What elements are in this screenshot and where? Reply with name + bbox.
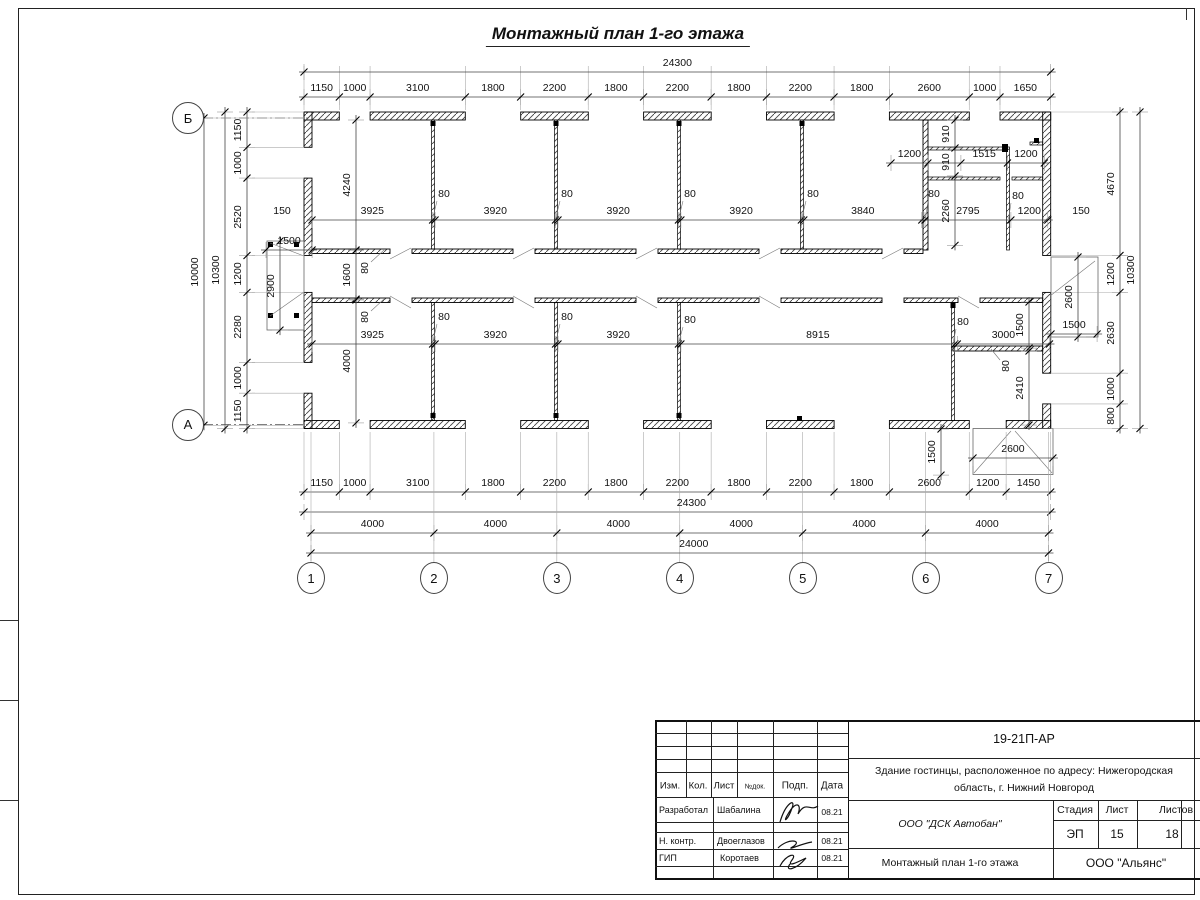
row-role: ГИП: [659, 853, 677, 863]
axis-bubble-6: 6: [912, 562, 940, 594]
dim-label: 4000: [852, 518, 875, 530]
dim-label: 3100: [406, 477, 429, 489]
dim-label: 3920: [484, 205, 507, 217]
dim-label: 1150: [310, 82, 333, 94]
dim-label: 2600: [918, 477, 941, 489]
dim-label: 1000: [343, 82, 366, 94]
dim-label: 3000: [992, 329, 1015, 341]
dim-label: 3925: [361, 205, 384, 217]
sheets-total: 18: [1165, 827, 1178, 841]
dim-label: 1800: [850, 82, 873, 94]
axis-bubble-2: 2: [420, 562, 448, 594]
dim-label: 1000: [973, 82, 996, 94]
dim-label: 4000: [361, 518, 384, 530]
dim-label: 1500: [1062, 319, 1085, 331]
dim-label: 80: [1012, 190, 1024, 202]
org-name: ООО "ДСК Автобан": [898, 818, 1001, 830]
dim-label: 910: [940, 153, 952, 171]
dim-label: 80: [1000, 360, 1012, 372]
stage-label: Стадия: [1057, 804, 1093, 816]
col-list: Лист: [714, 781, 735, 792]
dim-label: 2200: [789, 82, 812, 94]
dim-label: 1800: [727, 82, 750, 94]
dim-label: 4240: [341, 173, 353, 196]
col-izm: Изм.: [660, 781, 680, 792]
dim-label: 80: [928, 188, 940, 200]
dim-label: 2630: [1105, 321, 1117, 344]
dim-label: 910: [940, 125, 952, 143]
dim-label: 2200: [789, 477, 812, 489]
dim-label: 1150: [232, 118, 244, 141]
dim-label: 2280: [232, 316, 244, 339]
sheet-label: Лист: [1106, 804, 1129, 816]
dim-label: 1450: [1017, 477, 1040, 489]
dim-label: 2600: [918, 82, 941, 94]
dim-label: 8915: [806, 329, 829, 341]
col-data: Дата: [821, 781, 843, 792]
dim-label: 1150: [232, 400, 244, 423]
firm-name: ООО "Альянс": [1086, 856, 1166, 870]
dim-label: 3840: [851, 205, 874, 217]
dim-label: 1800: [727, 477, 750, 489]
dim-label: 1200: [1014, 148, 1037, 160]
dim-label: 80: [438, 188, 450, 200]
col-podp: Подп.: [782, 781, 809, 792]
dim-label: 1200: [1018, 205, 1041, 217]
dim-label: 2520: [232, 205, 244, 228]
dim-label: 80: [684, 314, 696, 326]
dim-label: 1800: [604, 82, 627, 94]
row-date: 08.21: [821, 853, 842, 863]
project-code: 19-21П-АР: [993, 732, 1055, 746]
dim-label: 4000: [341, 350, 353, 373]
dim-label: 3925: [361, 329, 384, 341]
col-kol: Кол.: [689, 781, 708, 792]
axis-bubble-А: А: [172, 409, 204, 441]
dim-label: 10300: [1125, 256, 1137, 285]
dim-label: 80: [561, 188, 573, 200]
drawing-name: Монтажный план 1-го этажа: [882, 857, 1019, 869]
row-role: Разработал: [659, 805, 708, 815]
building-line2: область, г. Нижний Новгород: [954, 782, 1094, 794]
dim-label: 1500: [277, 235, 300, 247]
row-date: 08.21: [821, 807, 842, 817]
dim-label: 24000: [679, 538, 708, 550]
dim-label: 1515: [972, 148, 995, 160]
dimension-chain: [239, 107, 304, 433]
dim-label: 1800: [481, 82, 504, 94]
dim-label: 4000: [975, 518, 998, 530]
axis-bubble-Б: Б: [172, 102, 204, 134]
dim-label: 80: [684, 188, 696, 200]
dim-label: 3920: [607, 205, 630, 217]
dim-label: 1200: [898, 148, 921, 160]
dim-label: 80: [359, 311, 371, 323]
dim-label: 80: [561, 311, 573, 323]
row-role: Н. контр.: [659, 836, 696, 846]
row-date: 08.21: [821, 836, 842, 846]
dim-label: 2410: [1014, 376, 1026, 399]
dim-label: 2200: [543, 477, 566, 489]
dim-label: 1800: [850, 477, 873, 489]
dim-label: 2600: [1063, 285, 1075, 308]
dim-label: 24300: [663, 57, 692, 69]
dim-label: 80: [359, 262, 371, 274]
dim-label: 3920: [607, 329, 630, 341]
dim-label: 2900: [265, 274, 277, 297]
col-ndok: №док.: [745, 784, 766, 791]
dimension-chain: [299, 432, 1056, 500]
dim-label: 4000: [730, 518, 753, 530]
dim-label: 24300: [677, 497, 706, 509]
dim-label: 3920: [484, 329, 507, 341]
dim-label: 80: [807, 188, 819, 200]
dim-label: 1500: [926, 440, 938, 463]
dim-label: 2200: [666, 477, 689, 489]
dim-label: 2200: [666, 82, 689, 94]
dim-label: 1150: [310, 477, 333, 489]
drawing-sheet: { "sheet": { "title": "Монтажный план 1-…: [0, 0, 1200, 900]
dim-label: 3100: [406, 82, 429, 94]
dim-label: 1000: [232, 366, 244, 389]
signature: [776, 796, 820, 828]
dim-label: 10300: [210, 256, 222, 285]
axis-bubble-7: 7: [1035, 562, 1063, 594]
dim-label: 4670: [1105, 172, 1117, 195]
dim-label: 10000: [189, 257, 201, 286]
dim-label: 1000: [343, 477, 366, 489]
axis-bubble-1: 1: [297, 562, 325, 594]
sheets-label: Листов: [1159, 804, 1193, 816]
dim-label: 1500: [1014, 313, 1026, 336]
dim-label: 1650: [1014, 82, 1037, 94]
sheet-number: 15: [1110, 827, 1123, 841]
building-line1: Здание гостинцы, расположенное по адресу…: [875, 765, 1173, 777]
dim-label: 2600: [1001, 443, 1024, 455]
dim-label: 800: [1105, 407, 1117, 425]
row-name: Шабалина: [717, 805, 760, 815]
dim-label: 2200: [543, 82, 566, 94]
dim-label: 1200: [1105, 262, 1117, 285]
dim-label: 1200: [976, 477, 999, 489]
dim-label: 1200: [232, 262, 244, 285]
dim-label: 80: [957, 316, 969, 328]
axis-bubble-5: 5: [789, 562, 817, 594]
dim-label: 2795: [956, 205, 979, 217]
dim-label: 3920: [729, 205, 752, 217]
dim-label: 4000: [607, 518, 630, 530]
dim-label: 1000: [232, 151, 244, 174]
dim-label: 80: [438, 311, 450, 323]
dimension-chain: [307, 336, 1054, 352]
signature: [772, 836, 820, 874]
dim-label: 150: [1072, 205, 1090, 217]
dim-label: 1800: [481, 477, 504, 489]
dim-label: 150: [273, 205, 291, 217]
stage-value: ЭП: [1066, 827, 1083, 841]
axis-bubble-3: 3: [543, 562, 571, 594]
row-name: Коротаев: [720, 853, 759, 863]
axis-bubble-4: 4: [666, 562, 694, 594]
row-name: Двоеглазов: [717, 836, 765, 846]
dim-label: 1000: [1105, 377, 1117, 400]
dim-label: 1600: [341, 263, 353, 286]
dim-label: 2260: [940, 199, 952, 222]
dim-label: 1800: [604, 477, 627, 489]
dim-label: 4000: [484, 518, 507, 530]
